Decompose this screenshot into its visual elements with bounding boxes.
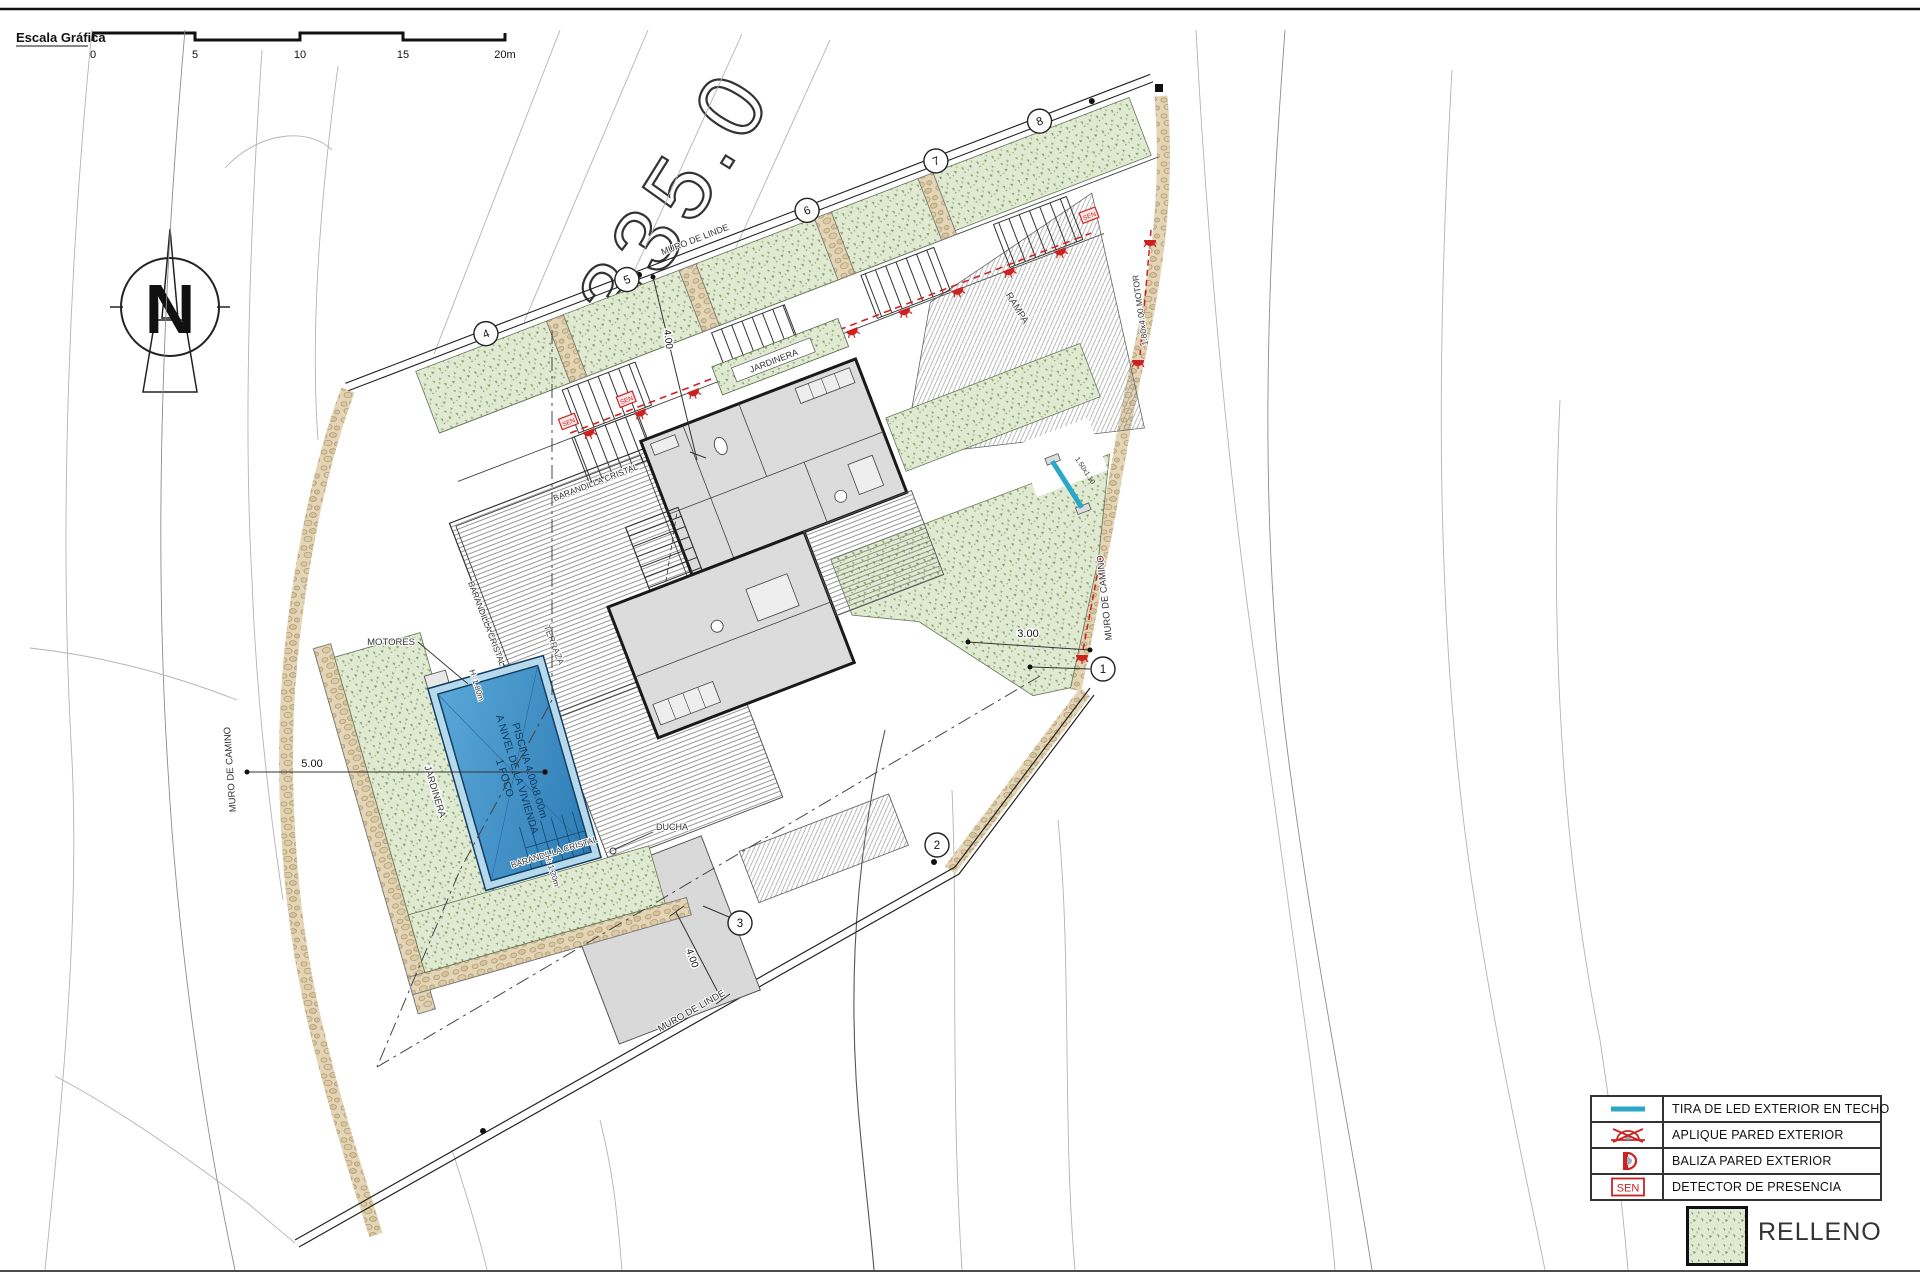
scale-tick: 0	[90, 49, 96, 61]
marker-3: 3	[737, 918, 743, 930]
legend-label: DETECTOR DE PRESENCIA	[1664, 1180, 1841, 1194]
scale-bar: Escala Gráfica 0 5 10 15 20m	[16, 30, 516, 61]
site-plan-drawing: Escala Gráfica 0 5 10 15 20m N 335.0	[0, 0, 1920, 1280]
road-wall-left-label: MURO DE CAMINO	[222, 726, 239, 812]
relleno-label: RELLENO	[1758, 1218, 1882, 1247]
north-letter: N	[145, 270, 196, 348]
relleno-swatch	[1686, 1206, 1748, 1266]
legend-label: BALIZA PARED EXTERIOR	[1664, 1154, 1832, 1168]
site-plan-page: Escala Gráfica 0 5 10 15 20m N 335.0	[0, 0, 1920, 1280]
presence-detector-icon: SEN	[1592, 1175, 1664, 1199]
marker-2: 2	[934, 840, 940, 852]
scale-tick: 15	[397, 49, 409, 61]
legend-row-baliza: BALIZA PARED EXTERIOR	[1592, 1149, 1880, 1175]
ducha-label: DUCHA	[656, 822, 688, 832]
legend-row-aplique: APLIQUE PARED EXTERIOR	[1592, 1123, 1880, 1149]
wall-beacon-icon	[1592, 1149, 1664, 1173]
sen-text: SEN	[1617, 1183, 1640, 1195]
led-strip-icon	[1592, 1097, 1664, 1121]
legend-row-detector: SEN DETECTOR DE PRESENCIA	[1592, 1175, 1880, 1199]
wall-sconce-icon	[1592, 1123, 1664, 1147]
legend-label: TIRA DE LED EXTERIOR EN TECHO	[1664, 1102, 1889, 1116]
legend-table: TIRA DE LED EXTERIOR EN TECHO APLIQUE PA…	[1590, 1095, 1882, 1201]
legend-row-led: TIRA DE LED EXTERIOR EN TECHO	[1592, 1097, 1880, 1123]
scale-tick: 5	[192, 49, 198, 61]
scale-tick: 20m	[494, 49, 515, 61]
dim-left: 5.00	[301, 758, 322, 770]
motores-label: MOTORES	[367, 637, 415, 648]
marker-1: 1	[1100, 664, 1106, 676]
scale-tick: 10	[294, 49, 306, 61]
legend-label: APLIQUE PARED EXTERIOR	[1664, 1128, 1844, 1142]
north-arrow-icon: N	[110, 229, 230, 392]
wall-southeast	[950, 692, 1085, 870]
dim-right: 3.00	[1017, 628, 1038, 640]
